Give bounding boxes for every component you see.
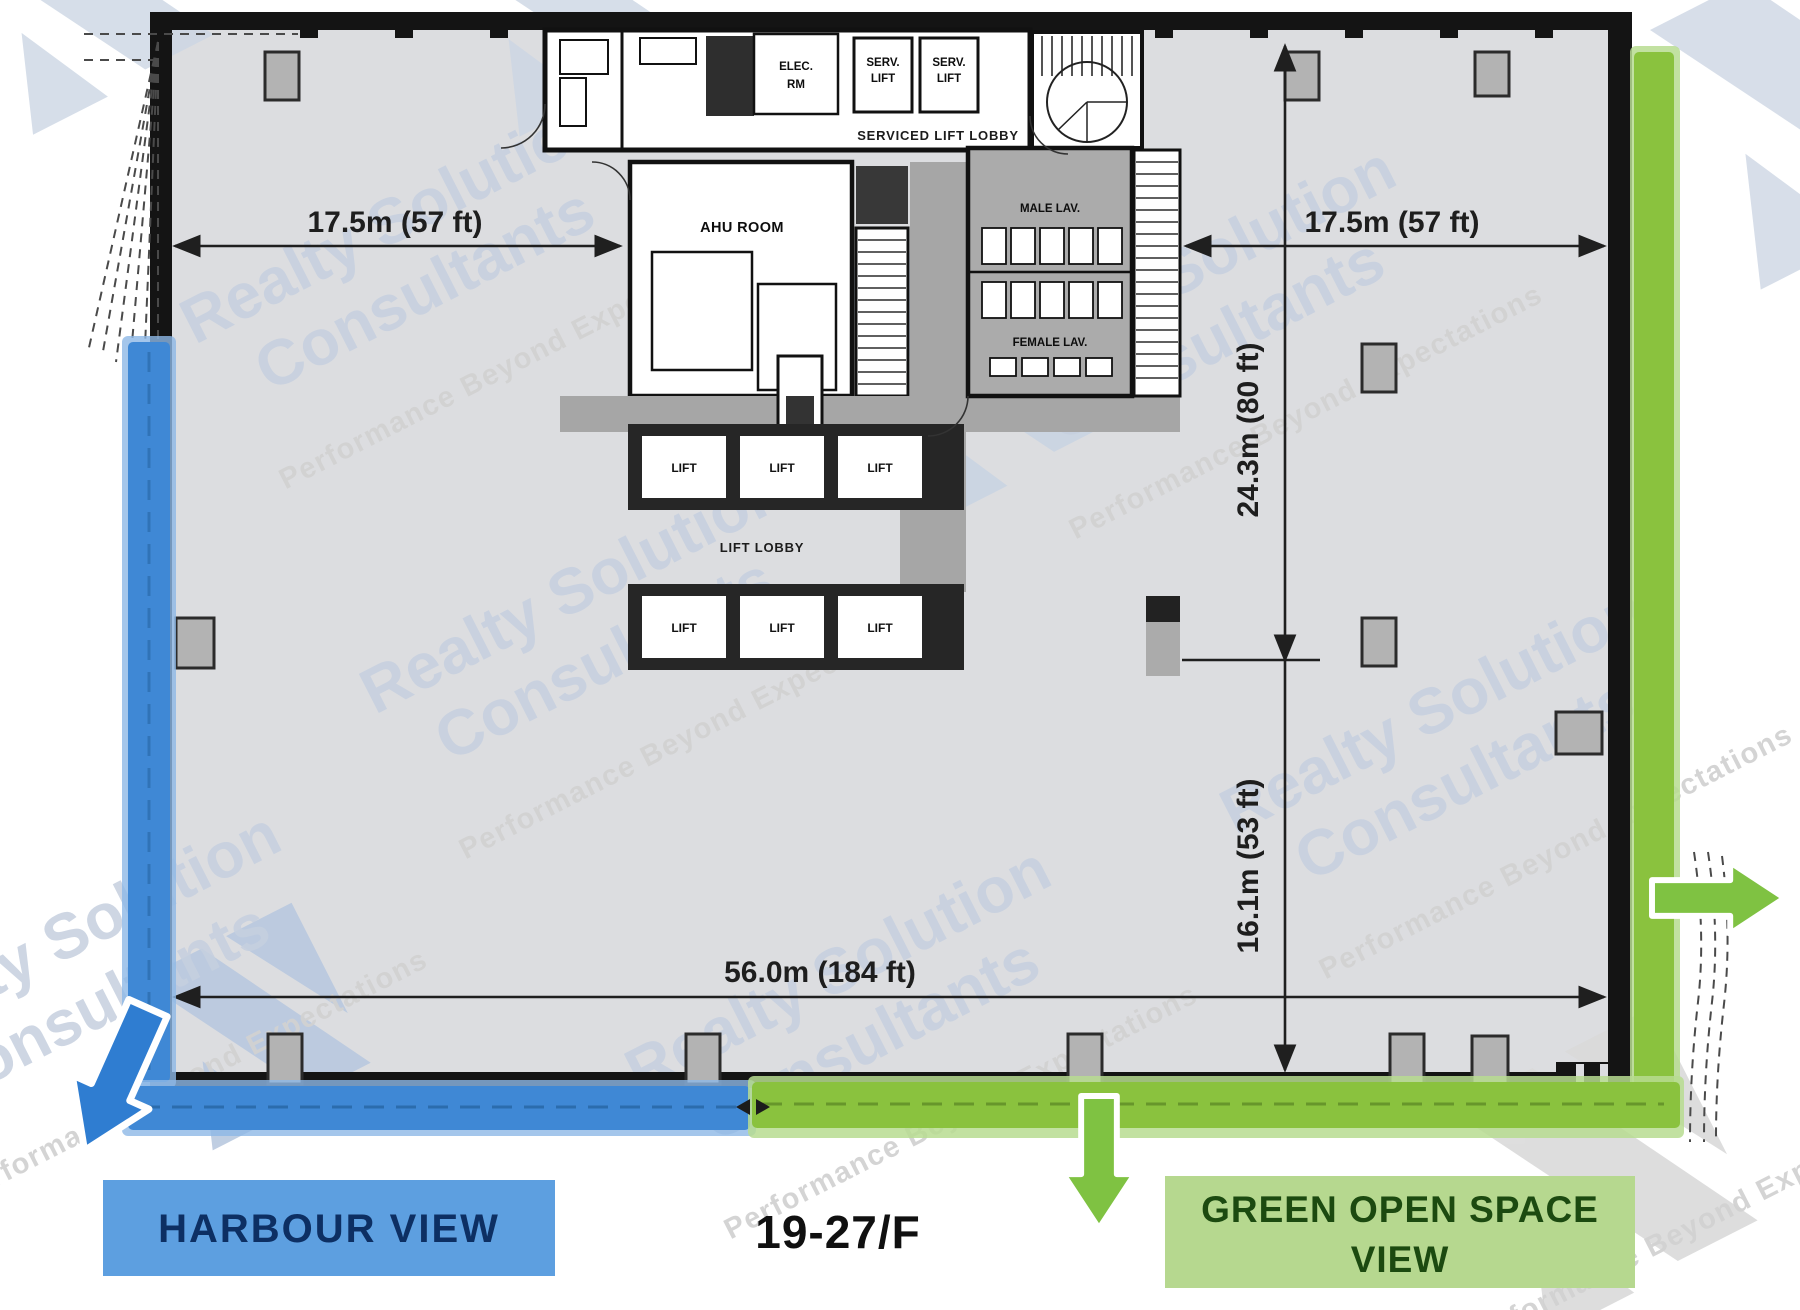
dim-total-label: 56.0m (184 ft) (724, 956, 916, 989)
service-lift-label: LIFT (871, 73, 895, 85)
lift-label: LIFT (867, 621, 893, 635)
lift-label: LIFT (769, 461, 795, 475)
lift-label: LIFT (671, 461, 697, 475)
male-lav-cubicles (982, 228, 1122, 264)
riser-shaft (856, 166, 908, 224)
spiral-stair-block (1032, 32, 1142, 148)
female-lav-cubicles (982, 282, 1122, 318)
elec-room-label: ELEC. (779, 61, 813, 73)
dim-east-label: 17.5m (57 ft) (1304, 206, 1479, 239)
core-stub-shaft (1146, 596, 1180, 622)
east-wall (1608, 12, 1632, 1084)
lift-bank-lower: LIFT LIFT LIFT (628, 584, 964, 670)
green-open-space-label-line2: VIEW (1351, 1239, 1450, 1280)
serviced-lift-lobby-label: SERVICED LIFT LOBBY (857, 128, 1019, 143)
lavatories-block: MALE LAV. FEMALE LAV. (968, 148, 1132, 396)
lift-bank-upper: LIFT LIFT LIFT (628, 424, 964, 510)
lift-label: LIFT (867, 461, 893, 475)
lift-label: LIFT (769, 621, 795, 635)
service-lift-label: SERV. (866, 57, 899, 69)
floor-range-label: 19-27/F (755, 1206, 921, 1258)
service-lift-label: LIFT (937, 73, 961, 85)
mid-stair (856, 228, 908, 396)
lift-label: LIFT (671, 621, 697, 635)
corridor-vertical-upper (910, 162, 968, 396)
service-shaft (706, 36, 754, 116)
floor-plan-page: Realty Solution Consultants Performance … (0, 0, 1800, 1310)
harbour-view-label: HARBOUR VIEW (158, 1207, 500, 1251)
north-wall (150, 12, 1632, 30)
green-open-space-legend: GREEN OPEN SPACE VIEW (1165, 1176, 1635, 1288)
green-band-east (1634, 52, 1674, 1090)
male-lav-label: MALE LAV. (1020, 203, 1080, 215)
dim-west-label: 17.5m (57 ft) (307, 206, 482, 239)
service-lift-2: SERV. LIFT (920, 38, 978, 112)
east-stair (1134, 150, 1180, 396)
dim-south-depth-label: 16.1m (53 ft) (1232, 778, 1265, 953)
elec-room-label: RM (787, 79, 805, 91)
lift-lobby-label: LIFT LOBBY (720, 540, 805, 555)
ahu-room-label: AHU ROOM (700, 220, 784, 236)
core-stub (1146, 622, 1180, 676)
floor-plan-canvas: Realty Solution Consultants Performance … (0, 0, 1800, 1310)
elec-room: ELEC. RM (754, 34, 838, 114)
service-lift-1: SERV. LIFT (854, 38, 912, 112)
female-lav-label: FEMALE LAV. (1013, 337, 1088, 349)
service-lift-label: SERV. (932, 57, 965, 69)
harbour-view-legend: HARBOUR VIEW (103, 1180, 555, 1276)
green-open-space-label-line1: GREEN OPEN SPACE (1201, 1189, 1599, 1230)
dim-core-depth-label: 24.3m (80 ft) (1232, 342, 1265, 517)
